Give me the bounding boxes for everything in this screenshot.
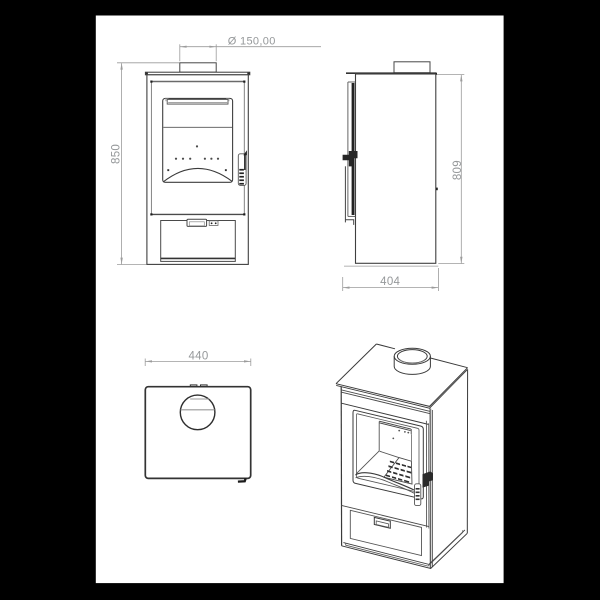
- svg-text:440: 440: [188, 351, 208, 363]
- svg-text:404: 404: [380, 276, 400, 288]
- svg-text:809: 809: [452, 160, 464, 180]
- svg-text:Ø 150,00: Ø 150,00: [228, 35, 276, 47]
- svg-text:850: 850: [110, 144, 122, 164]
